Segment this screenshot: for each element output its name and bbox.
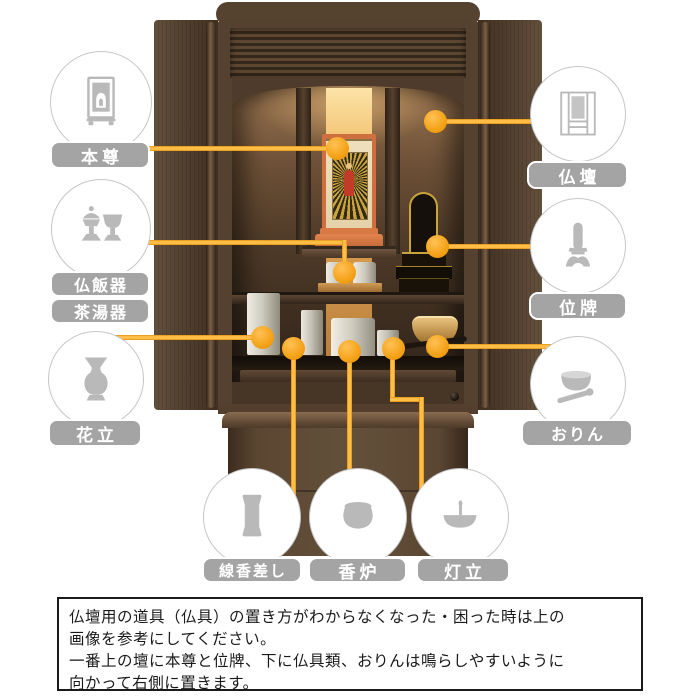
left-door-molding: [206, 22, 216, 408]
label-senkosashi: 線香差し: [202, 557, 302, 583]
icon-circle-todate: [411, 468, 509, 566]
offering-cup-right: [353, 262, 376, 284]
orin-bell-icon: [550, 356, 606, 412]
label-todate: 灯立: [416, 557, 510, 583]
altar-cabinet-icon: [550, 86, 606, 142]
interior-post-right: [385, 88, 400, 254]
note-box: 仏壇用の道具（仏具）の置き方がわからなくなった・困った時は上の 画像を参考にして…: [57, 597, 643, 691]
callout-dot-honzon: [326, 137, 349, 160]
altar-shutter: [230, 28, 466, 78]
icon-circle-senkosashi: [203, 468, 301, 566]
buddha-figure: [344, 170, 354, 196]
ihai-stand-tier3: [399, 278, 449, 293]
callout-dot-ihai: [426, 235, 449, 258]
icon-circle-orin: [530, 336, 626, 432]
right-door-molding: [480, 22, 490, 408]
callout-dot-todate: [382, 337, 405, 360]
label-butsuhanki: 仏飯器: [50, 271, 150, 297]
callout-dot-butsuhanki: [333, 261, 356, 284]
center-platform: [302, 246, 396, 258]
offering-vessels-icon: [72, 200, 130, 258]
icon-circle-hanatate: [48, 331, 144, 427]
icon-circle-honzon: [50, 51, 152, 153]
offering-tray: [318, 283, 382, 292]
callout-dot-hanatate: [251, 326, 274, 349]
buddha-head: [346, 163, 352, 169]
cabinet-knob: [450, 392, 459, 401]
icon-circle-butsudan: [530, 66, 626, 162]
label-butsudan: 仏壇: [527, 161, 628, 189]
interior-post-left: [296, 88, 311, 254]
label-koro: 香炉: [308, 557, 407, 583]
incense-burner-icon: [329, 488, 387, 546]
incense-stick-holder-icon: [223, 488, 281, 546]
label-hanatate: 花立: [48, 419, 142, 447]
icon-circle-ihai: [530, 198, 626, 294]
hanging-scroll-icon: [72, 73, 130, 131]
label-honzon: 本尊: [50, 141, 150, 169]
callout-dot-orin: [426, 335, 449, 358]
placement-guide-image: 本尊 仏壇 仏飯器 茶湯器 位牌 花立 おりん 線香差し 香炉 灯立 仏壇用の道…: [0, 0, 700, 700]
label-chatouki: 茶湯器: [50, 298, 150, 324]
callout-dot-senkosashi: [282, 337, 305, 360]
memorial-tablet-icon: [550, 218, 606, 274]
icon-circle-butsuhanki: [51, 179, 151, 279]
candle-stand-icon: [431, 488, 489, 546]
label-ihai: 位牌: [529, 292, 627, 320]
callout-dot-koro: [338, 340, 361, 363]
note-text: 仏壇用の道具（仏具）の置き方がわからなくなった・困った時は上の 画像を参考にして…: [69, 606, 631, 694]
label-orin: おりん: [521, 419, 633, 447]
flower-vase-icon: [68, 351, 124, 407]
icon-circle-koro: [309, 468, 407, 566]
callout-dot-butsudan: [424, 110, 447, 133]
